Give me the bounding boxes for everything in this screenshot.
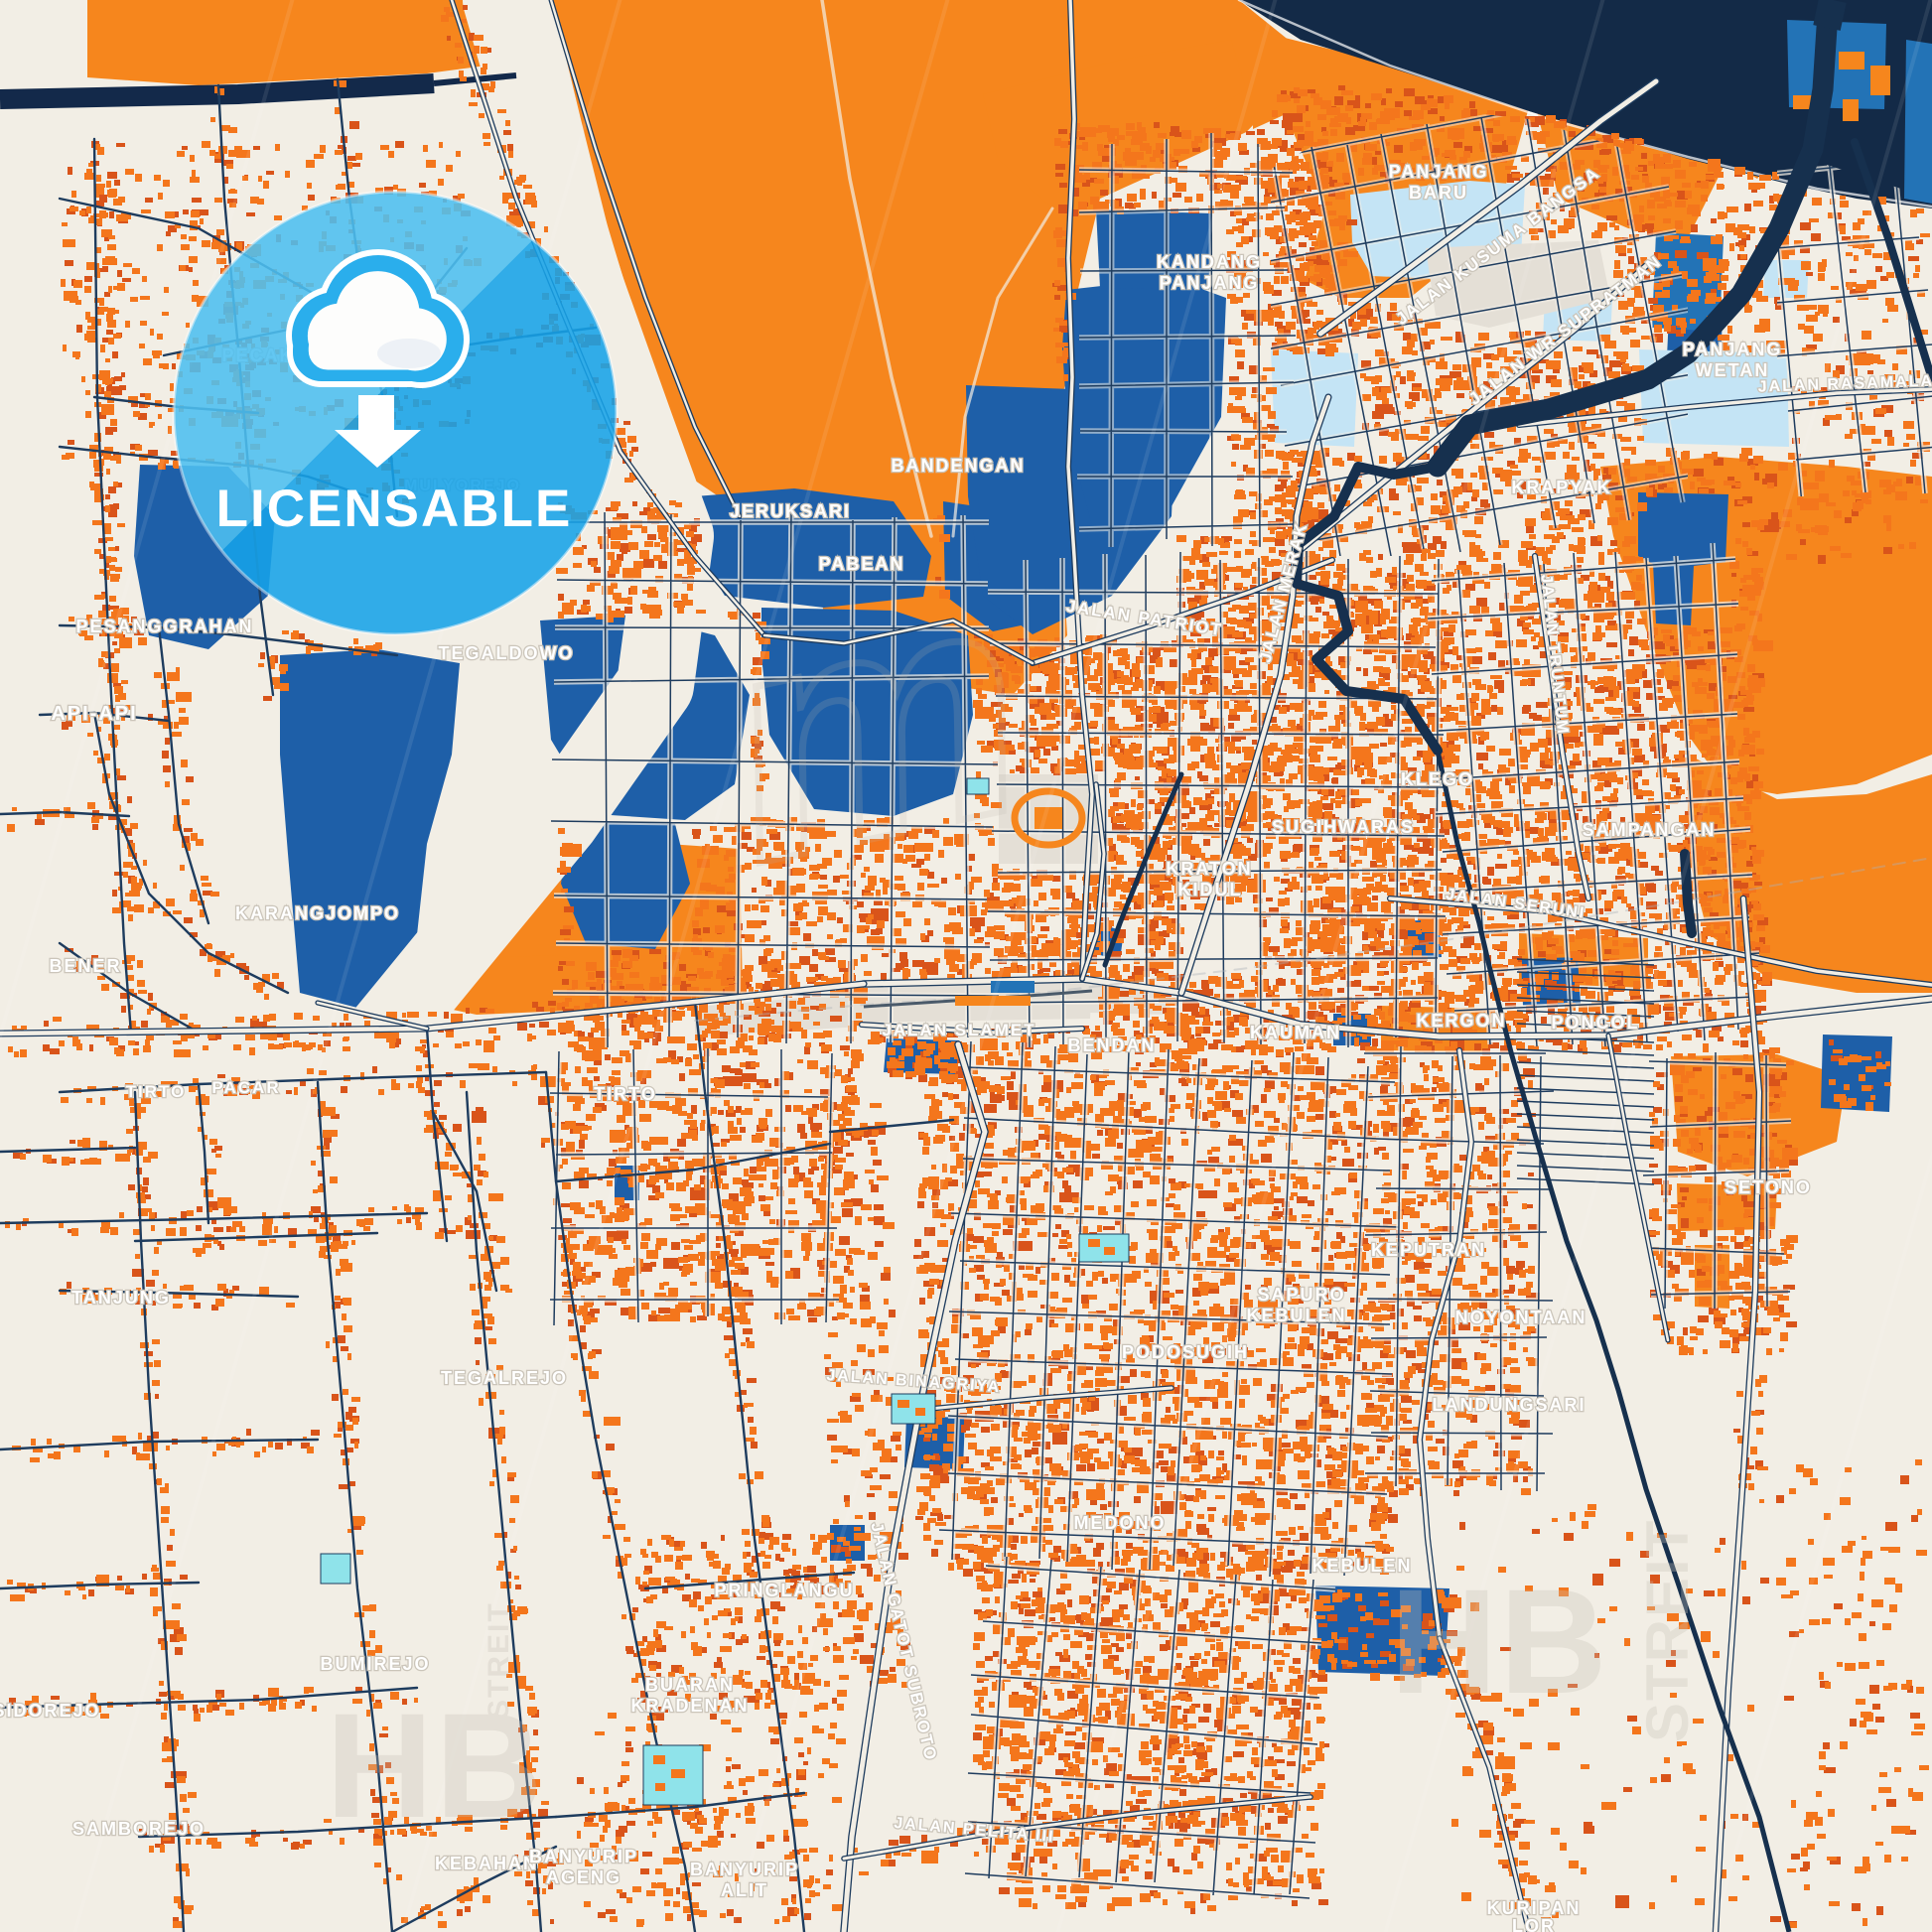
svg-text:LICENSABLE: LICENSABLE: [216, 480, 573, 538]
svg-text:TIRTO: TIRTO: [594, 1084, 657, 1104]
svg-text:TEGALREJO: TEGALREJO: [441, 1368, 568, 1388]
svg-text:BENER: BENER: [49, 956, 121, 976]
svg-text:KARANGJOMPO: KARANGJOMPO: [235, 903, 400, 923]
svg-text:KANDANG: KANDANG: [1157, 252, 1262, 272]
svg-text:KERGON: KERGON: [1416, 1011, 1506, 1031]
svg-text:KAUMAN: KAUMAN: [1250, 1023, 1341, 1042]
svg-text:BANYURIP: BANYURIP: [529, 1847, 638, 1866]
svg-text:LOR: LOR: [1512, 1916, 1556, 1932]
svg-text:KEBULEN: KEBULEN: [1311, 1556, 1412, 1576]
svg-text:SAPURO: SAPURO: [1257, 1285, 1345, 1305]
svg-text:SAMPANGAN: SAMPANGAN: [1583, 820, 1717, 840]
svg-text:BANYURIP: BANYURIP: [690, 1860, 799, 1879]
svg-text:TANJUNG: TANJUNG: [71, 1288, 171, 1308]
svg-text:PANJANG: PANJANG: [1683, 340, 1783, 359]
svg-text:LANDUNGSARI: LANDUNGSARI: [1433, 1395, 1587, 1415]
svg-text:ALIT: ALIT: [721, 1880, 768, 1900]
svg-text:BUARAN: BUARAN: [645, 1675, 735, 1695]
svg-text:API-API: API-API: [51, 703, 137, 725]
svg-text:PACAR: PACAR: [211, 1078, 280, 1097]
svg-text:MEDONO: MEDONO: [1074, 1513, 1167, 1533]
svg-text:JERUKSARI: JERUKSARI: [730, 501, 851, 521]
svg-text:PRINGLANGU: PRINGLANGU: [715, 1581, 855, 1600]
svg-text:BARU: BARU: [1409, 183, 1468, 203]
svg-text:PANJANG: PANJANG: [1389, 162, 1489, 182]
svg-text:STREIT: STREIT: [483, 1601, 515, 1720]
svg-text:AGENG: AGENG: [546, 1867, 621, 1887]
svg-text:KIDUL: KIDUL: [1178, 880, 1243, 899]
svg-text:SAMBOREJO: SAMBOREJO: [72, 1819, 206, 1839]
svg-text:PESANGGRAHAN: PESANGGRAHAN: [75, 617, 253, 636]
svg-text:SIDOREJO: SIDOREJO: [0, 1701, 101, 1721]
svg-text:SUGIHWARAS: SUGIHWARAS: [1272, 817, 1415, 837]
svg-text:SETONO: SETONO: [1725, 1177, 1812, 1197]
svg-text:WETAN: WETAN: [1696, 360, 1770, 380]
svg-text:BANDENGAN: BANDENGAN: [892, 456, 1026, 476]
svg-text:KEBAHAN: KEBAHAN: [435, 1854, 538, 1873]
svg-text:KRADENAN: KRADENAN: [631, 1696, 750, 1716]
svg-text:PONCOL: PONCOL: [1551, 1013, 1639, 1033]
svg-text:KRAPYAK: KRAPYAK: [1511, 478, 1611, 497]
svg-text:JALAN SLAMET: JALAN SLAMET: [882, 1021, 1035, 1039]
svg-text:BENDAN: BENDAN: [1067, 1035, 1156, 1055]
svg-text:PODOSUGIH: PODOSUGIH: [1122, 1342, 1249, 1362]
svg-text:KURIPAN: KURIPAN: [1487, 1898, 1582, 1918]
svg-text:TEGALDOWO: TEGALDOWO: [439, 643, 575, 663]
svg-text:KLEGO: KLEGO: [1401, 769, 1474, 789]
svg-text:TIRTO: TIRTO: [126, 1082, 187, 1101]
svg-text:NOYONTAAN: NOYONTAAN: [1455, 1308, 1587, 1327]
svg-text:KRATON: KRATON: [1166, 859, 1252, 879]
svg-text:BUMIREJO: BUMIREJO: [320, 1654, 430, 1674]
svg-text:STREIT: STREIT: [1634, 1519, 1701, 1742]
svg-text:HB: HB: [1390, 1558, 1609, 1725]
svg-text:PABEAN: PABEAN: [819, 554, 905, 574]
svg-text:PANJANG: PANJANG: [1160, 273, 1260, 293]
svg-text:KEBULEN: KEBULEN: [1246, 1306, 1346, 1325]
svg-text:KEPUTRAN: KEPUTRAN: [1371, 1240, 1486, 1260]
